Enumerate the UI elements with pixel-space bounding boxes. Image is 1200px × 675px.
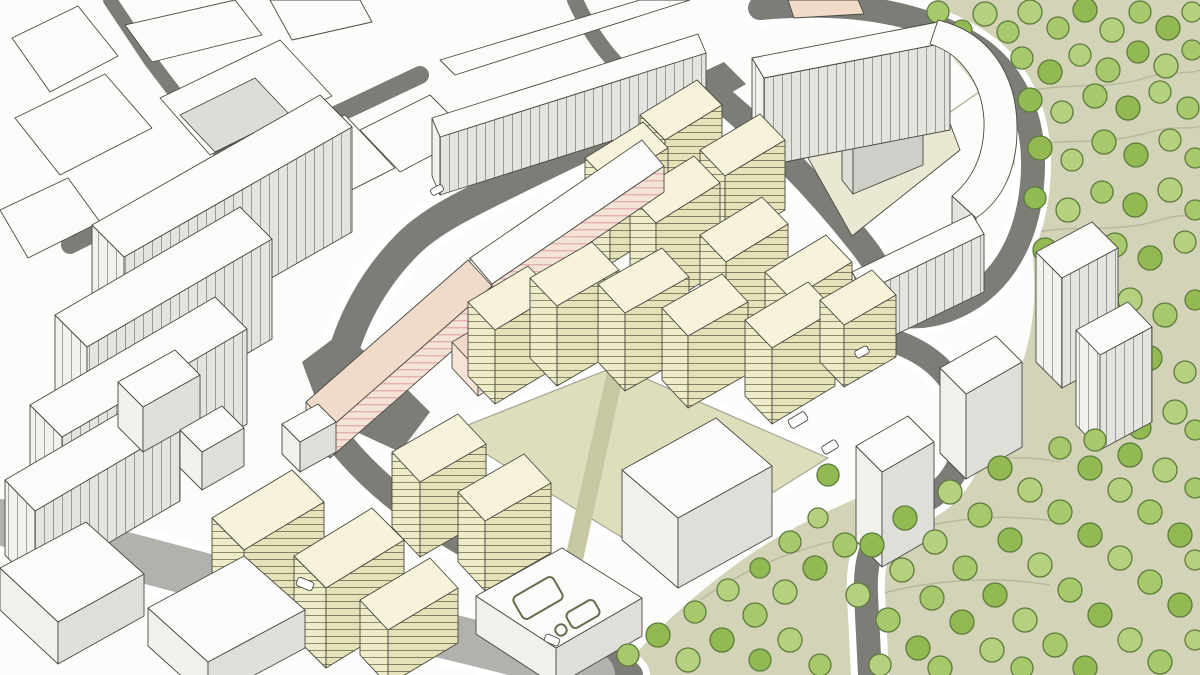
- tree: [1096, 58, 1120, 82]
- tree: [1185, 478, 1200, 498]
- tree: [1148, 650, 1172, 674]
- tree: [1091, 181, 1113, 203]
- tree: [1185, 148, 1200, 168]
- tree: [1078, 456, 1102, 480]
- tree: [1138, 246, 1162, 270]
- tree: [846, 583, 870, 607]
- tree: [1018, 88, 1042, 112]
- tree: [1127, 41, 1149, 63]
- tree: [1061, 149, 1083, 171]
- tree: [1138, 500, 1162, 524]
- tree: [1116, 96, 1140, 120]
- tree: [1056, 198, 1080, 222]
- tree: [1013, 608, 1037, 632]
- tree: [1069, 44, 1091, 66]
- tree: [1156, 16, 1180, 40]
- tree: [808, 508, 828, 528]
- tree: [893, 506, 917, 530]
- tree: [1168, 593, 1192, 617]
- tree: [997, 21, 1019, 43]
- tree: [1088, 603, 1112, 627]
- tree: [928, 656, 952, 675]
- tree: [869, 654, 891, 675]
- tree: [646, 623, 670, 647]
- tree: [1185, 200, 1200, 220]
- tree: [1108, 478, 1132, 502]
- tree: [953, 556, 977, 580]
- tree: [817, 464, 839, 486]
- tree: [1168, 523, 1192, 547]
- tree: [1185, 630, 1200, 650]
- tree: [1185, 290, 1200, 310]
- tree: [1138, 570, 1162, 594]
- tree: [1149, 81, 1171, 103]
- tree: [743, 603, 767, 627]
- tree: [1174, 231, 1196, 253]
- tree: [1028, 136, 1052, 160]
- tree: [1177, 97, 1199, 119]
- tree: [1083, 84, 1107, 108]
- tree: [923, 530, 947, 554]
- tree: [998, 528, 1022, 552]
- tree: [779, 531, 801, 553]
- tree: [803, 556, 827, 580]
- tree: [676, 648, 700, 672]
- site-plan-svg: [0, 0, 1200, 675]
- tree: [1124, 143, 1148, 167]
- tree: [833, 533, 857, 557]
- tree: [1153, 303, 1177, 327]
- tree: [1048, 500, 1072, 524]
- tree: [1185, 420, 1200, 440]
- building-tower-right-2: [1076, 302, 1152, 450]
- tree: [773, 580, 797, 604]
- tree: [1028, 553, 1052, 577]
- tree: [1092, 130, 1116, 154]
- tree: [1163, 400, 1187, 424]
- tree: [710, 628, 734, 652]
- tree: [906, 636, 930, 660]
- tree: [778, 628, 802, 652]
- tree: [980, 638, 1004, 662]
- tree: [938, 480, 962, 504]
- tree: [1185, 550, 1200, 570]
- tree: [749, 649, 771, 671]
- tree: [1018, 478, 1042, 502]
- tree: [1154, 54, 1178, 78]
- tree: [968, 503, 992, 527]
- tree: [684, 601, 706, 623]
- aerial-massing-rendering: [0, 0, 1200, 675]
- tree: [1118, 443, 1142, 467]
- tree: [809, 654, 831, 675]
- tree: [860, 533, 884, 557]
- tree: [1038, 60, 1062, 84]
- tree: [876, 608, 900, 632]
- tree: [1073, 656, 1097, 675]
- tree: [1084, 429, 1106, 451]
- tree: [1043, 633, 1067, 657]
- tree: [1011, 657, 1033, 675]
- tree: [717, 579, 739, 601]
- tree: [1118, 628, 1142, 652]
- tree: [617, 644, 639, 666]
- tree: [1073, 0, 1097, 22]
- tree: [1174, 361, 1196, 383]
- tree: [1108, 546, 1132, 570]
- tree: [1153, 458, 1177, 482]
- tree: [1123, 193, 1147, 217]
- tree: [1159, 129, 1181, 151]
- tree: [1158, 178, 1182, 202]
- tree: [1018, 0, 1042, 24]
- tree: [750, 558, 770, 578]
- tree: [1047, 17, 1069, 39]
- tree: [1049, 437, 1071, 459]
- tree: [1051, 101, 1073, 123]
- tree: [1100, 18, 1124, 42]
- tree: [1058, 578, 1082, 602]
- tree: [973, 2, 997, 26]
- tree: [890, 558, 914, 582]
- tree: [1078, 523, 1102, 547]
- tree: [920, 586, 944, 610]
- tree: [983, 583, 1007, 607]
- tree: [1024, 187, 1046, 209]
- tree: [1182, 40, 1200, 60]
- tree: [1182, 2, 1200, 22]
- tree: [1129, 1, 1151, 23]
- tree: [950, 610, 974, 634]
- tree: [1011, 47, 1033, 69]
- tree: [988, 456, 1012, 480]
